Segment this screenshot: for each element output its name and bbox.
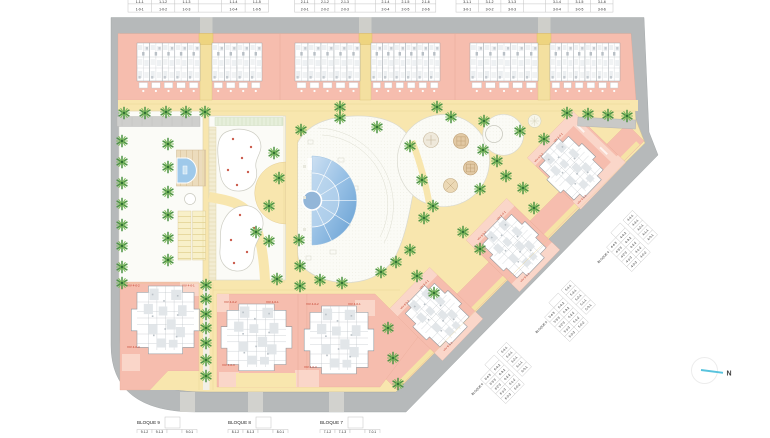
svg-text:BLOQUE 9: BLOQUE 9 [137,420,160,425]
svg-text:VIV 4-0-3: VIV 4-0-3 [222,363,235,367]
svg-text:VIV 4-0-2: VIV 4-0-2 [127,284,140,288]
svg-text:2-1-3: 2-1-3 [341,0,349,4]
svg-text:1-1-1: 1-1-1 [136,0,144,4]
svg-text:2-1-2: 2-1-2 [321,0,329,4]
svg-text:VIV 4-0-3: VIV 4-0-3 [127,345,140,349]
svg-text:1-0-3: 1-0-3 [183,8,191,12]
svg-text:2-1-4: 2-1-4 [381,0,389,4]
svg-text:3-1-3: 3-1-3 [508,0,516,4]
svg-text:2-0-5: 2-0-5 [402,8,410,12]
svg-text:2-1-6: 2-1-6 [422,0,430,4]
svg-text:2-0-3: 2-0-3 [341,8,349,12]
svg-text:3-1-5: 3-1-5 [575,0,583,4]
svg-text:1-1-3: 1-1-3 [183,0,191,4]
svg-text:3-1-2: 3-1-2 [486,0,494,4]
svg-text:N: N [727,371,732,378]
svg-text:3-1-1: 3-1-1 [463,0,471,4]
svg-text:1-1-2: 1-1-2 [159,0,167,4]
svg-text:3-0-4: 3-0-4 [553,8,561,12]
svg-text:3-0-2: 3-0-2 [486,8,494,12]
svg-text:2-1-1: 2-1-1 [301,0,309,4]
svg-text:1-0-1: 1-0-1 [136,8,144,12]
svg-text:2-0-6: 2-0-6 [422,8,430,12]
svg-text:2-1-5: 2-1-5 [402,0,410,4]
svg-text:VIV 4-0-3: VIV 4-0-3 [304,365,317,369]
svg-text:3-0-5: 3-0-5 [575,8,583,12]
svg-text:3-1-4: 3-1-4 [553,0,561,4]
svg-text:VIV 4-0-1: VIV 4-0-1 [182,284,195,288]
svg-text:VIV 4-0-1: VIV 4-0-1 [348,302,361,306]
svg-text:3-0-3: 3-0-3 [508,8,516,12]
svg-text:BLOQUE 8: BLOQUE 8 [228,420,251,425]
svg-text:3-0-6: 3-0-6 [598,8,606,12]
svg-text:BLOQUE 7: BLOQUE 7 [320,420,343,425]
svg-text:VIV 4-0-2: VIV 4-0-2 [306,302,319,306]
svg-text:VIV 4-0-2: VIV 4-0-2 [224,300,237,304]
svg-text:3-0-1: 3-0-1 [463,8,471,12]
svg-text:1-0-2: 1-0-2 [159,8,167,12]
svg-text:3-1-6: 3-1-6 [598,0,606,4]
svg-text:1-1-4: 1-1-4 [229,0,237,4]
svg-text:2-0-1: 2-0-1 [301,8,309,12]
svg-text:1-1-5: 1-1-5 [253,0,261,4]
svg-text:1-0-5: 1-0-5 [253,8,261,12]
svg-text:VIV 4-0-1: VIV 4-0-1 [266,300,279,304]
svg-text:1-0-4: 1-0-4 [229,8,237,12]
svg-text:2-0-4: 2-0-4 [381,8,389,12]
svg-text:2-0-2: 2-0-2 [321,8,329,12]
